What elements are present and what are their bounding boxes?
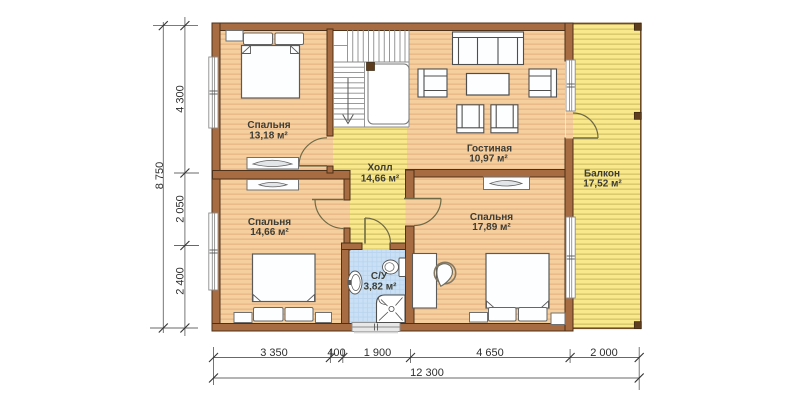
svg-text:17,89 м²: 17,89 м² bbox=[472, 222, 511, 233]
svg-text:С/У: С/У bbox=[371, 271, 388, 282]
svg-text:1 900: 1 900 bbox=[364, 347, 392, 359]
svg-text:8 750: 8 750 bbox=[154, 162, 166, 190]
svg-text:2 050: 2 050 bbox=[174, 195, 186, 223]
svg-text:4 300: 4 300 bbox=[174, 85, 186, 113]
svg-text:Спальня: Спальня bbox=[247, 120, 290, 131]
svg-text:10,97 м²: 10,97 м² bbox=[469, 154, 508, 165]
svg-text:14,66 м²: 14,66 м² bbox=[250, 227, 289, 238]
svg-text:2 000: 2 000 bbox=[590, 347, 618, 359]
svg-text:2 400: 2 400 bbox=[174, 267, 186, 295]
svg-text:13,18 м²: 13,18 м² bbox=[249, 131, 288, 142]
svg-text:Холл: Холл bbox=[367, 163, 392, 174]
svg-text:3 350: 3 350 bbox=[260, 347, 288, 359]
svg-text:17,52 м²: 17,52 м² bbox=[583, 178, 622, 189]
svg-text:4 650: 4 650 bbox=[476, 347, 504, 359]
svg-text:14,66 м²: 14,66 м² bbox=[361, 174, 400, 185]
svg-text:12 300: 12 300 bbox=[410, 367, 444, 379]
svg-text:3,82 м²: 3,82 м² bbox=[364, 282, 398, 293]
svg-text:400: 400 bbox=[327, 347, 345, 359]
